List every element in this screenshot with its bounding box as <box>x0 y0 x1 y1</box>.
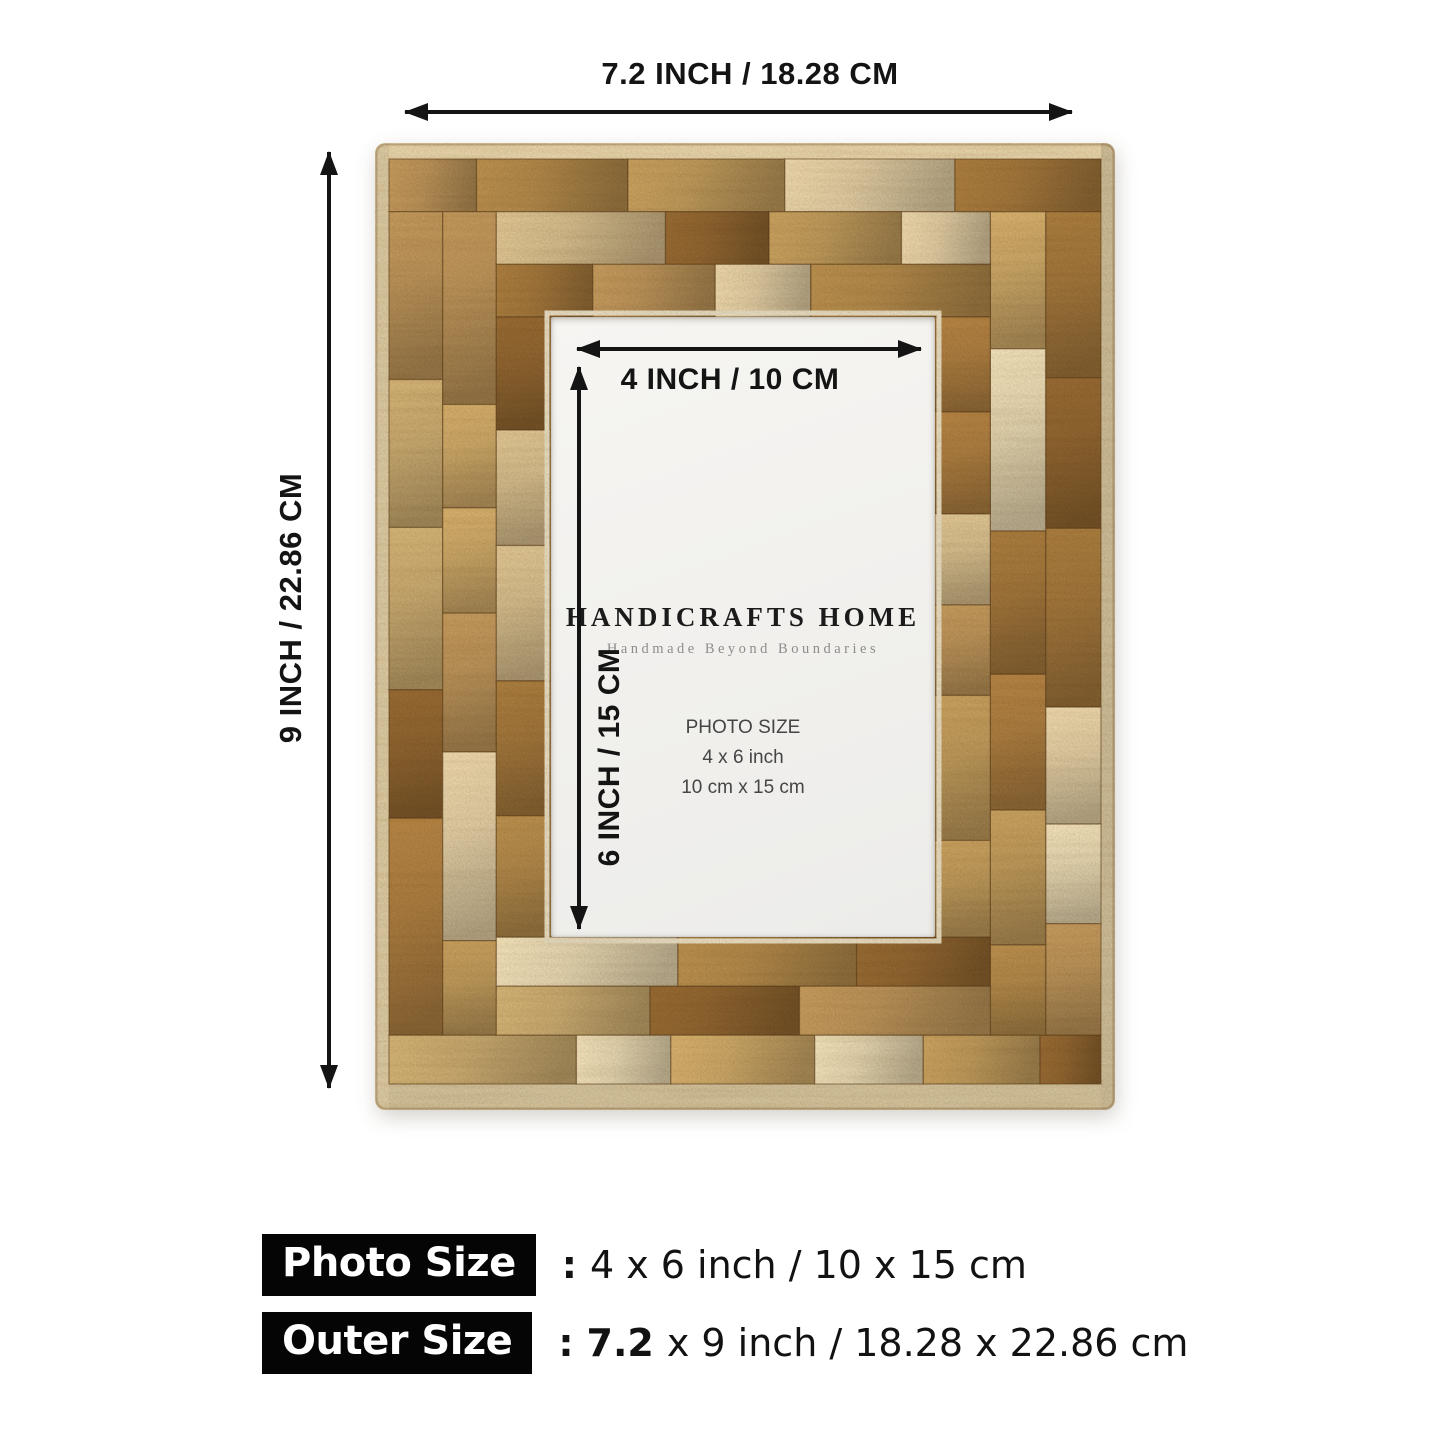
outer-size-label-badge: Outer Size <box>262 1312 532 1374</box>
outer-size-text: x 9 inch / 18.28 x 22.86 cm <box>667 1321 1189 1365</box>
outer-size-row: Outer Size : 7.2 x 9 inch / 18.28 x 22.8… <box>262 1312 1188 1374</box>
photo-size-row: Photo Size : 4 x 6 inch / 10 x 15 cm <box>262 1234 1027 1296</box>
outer-height-label: 9 INCH / 22.86 CM <box>273 473 309 743</box>
outer-size-value: : 7.2 x 9 inch / 18.28 x 22.86 cm <box>558 1321 1188 1365</box>
outer-size-bold-part: 7.2 <box>587 1321 654 1365</box>
inner-height-label: 6 INCH / 15 CM <box>593 648 627 867</box>
outer-width-label: 7.2 INCH / 18.28 CM <box>601 56 898 92</box>
outer-size-colon: : <box>558 1321 573 1365</box>
product-dimension-graphic: HANDICRAFTS HOME Handmade Beyond Boundar… <box>0 0 1445 1445</box>
photo-size-label-badge: Photo Size <box>262 1234 536 1296</box>
photo-size-value: : 4 x 6 inch / 10 x 15 cm <box>562 1243 1027 1287</box>
photo-size-colon: : <box>562 1243 577 1287</box>
photo-size-text: 4 x 6 inch / 10 x 15 cm <box>590 1243 1027 1287</box>
inner-width-label: 4 INCH / 10 CM <box>621 363 840 397</box>
brand-logo: HANDICRAFTS HOME <box>551 602 935 633</box>
